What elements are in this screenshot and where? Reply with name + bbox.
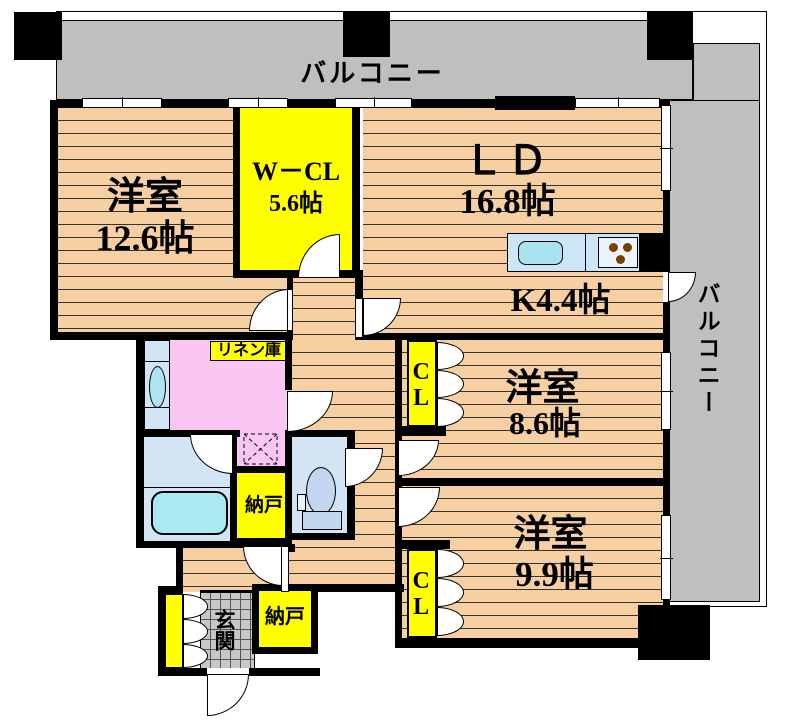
- balcony-right-upper: [693, 43, 760, 101]
- wall-hall-bottom: [312, 584, 404, 592]
- stove-burner-3: [616, 255, 625, 264]
- wall-living-bottom: [355, 333, 670, 340]
- kitchen-sink: [518, 241, 563, 265]
- bedroom3-size: 9.9帖: [492, 557, 617, 594]
- window-top-2: [228, 98, 288, 108]
- pillar-top-middle: [343, 12, 390, 57]
- wall-cl1-bottom: [402, 426, 446, 436]
- wall-storage1-top: [237, 466, 290, 473]
- storage2-label: 納戸: [261, 607, 309, 628]
- bedroom2-name: 洋室: [490, 370, 595, 409]
- storage1-label: 納戸: [240, 496, 288, 516]
- pillar-top-right: [647, 12, 693, 60]
- door-arc-entrance: [207, 674, 249, 716]
- wall-between-bedrooms: [395, 478, 670, 486]
- entrance-step-line: [200, 590, 255, 592]
- door-leaf-bedroom1: [287, 289, 293, 331]
- bedroom3-name: 洋室: [498, 516, 603, 555]
- wcl-name: W－CL: [237, 158, 355, 185]
- wall-washroom-right-upper: [285, 332, 292, 390]
- kitchen-label: K4.4帖: [478, 284, 643, 319]
- toilet-bowl: [306, 467, 336, 515]
- linen-label: リネン庫: [210, 343, 288, 360]
- living-name: ＬＤ: [420, 140, 595, 182]
- wcl-size: 5.6帖: [237, 192, 355, 217]
- living-size: 16.8帖: [420, 184, 595, 221]
- vanity-divider-2: [144, 407, 170, 408]
- vanity-sink: [149, 366, 166, 408]
- door-leaf-corridor: [281, 546, 289, 592]
- window-top-3: [335, 98, 412, 108]
- pillar-top-left: [14, 12, 62, 60]
- washing-machine-space: [243, 433, 278, 465]
- bedroom1-name: 洋室: [75, 178, 215, 218]
- window-bedroom2-east: [661, 352, 671, 430]
- shoe-cabinet: [165, 594, 183, 668]
- bathtub: [151, 491, 228, 535]
- wall-washroom-left: [136, 332, 144, 548]
- window-top-4: [575, 98, 660, 108]
- wall-left: [50, 100, 58, 340]
- kitchen-counter-divider: [585, 233, 586, 272]
- balcony-top-label: バルコニー: [280, 60, 465, 87]
- balcony-right-label: バルコニー: [694, 264, 718, 434]
- wall-cl2-top: [402, 540, 450, 549]
- bathroom-divider: [144, 487, 233, 488]
- pillar-bottom-right: [638, 605, 710, 660]
- wall-heavy-bar-top: [495, 96, 575, 110]
- wall-bedroom3-bottom: [395, 638, 670, 648]
- outer-line-right: [766, 11, 767, 607]
- wall-toilet-left: [285, 430, 292, 546]
- bedroom1-size: 12.6帖: [65, 220, 225, 258]
- toilet-tank: [302, 511, 342, 530]
- stove-burner-2: [623, 243, 632, 252]
- wall-bath-bottom: [136, 541, 243, 548]
- wall-bedroom1-bottom: [50, 332, 293, 340]
- bedroom2-size: 8.6帖: [485, 407, 605, 441]
- toilet-handle: [297, 494, 306, 511]
- closet1-label: CL: [408, 348, 433, 422]
- stove-burner-1: [609, 243, 618, 252]
- floor-plan-canvas: バルコニー バルコニー 洋室 12.6帖 W－CL 5.6帖 ＬＤ 16.8帖 …: [0, 0, 791, 728]
- closet2-label: CL: [408, 557, 433, 631]
- window-bedroom3-east: [661, 515, 671, 600]
- wall-toilet-bottom: [285, 533, 355, 540]
- wall-kitchen-chunk: [640, 233, 663, 272]
- window-living-east: [661, 105, 671, 191]
- window-top-1: [82, 98, 162, 108]
- entrance-label: 玄関: [213, 598, 235, 662]
- door-leaf-living: [355, 298, 363, 338]
- wall-wcl-bottom: [233, 270, 360, 278]
- vanity-divider-1: [144, 361, 170, 362]
